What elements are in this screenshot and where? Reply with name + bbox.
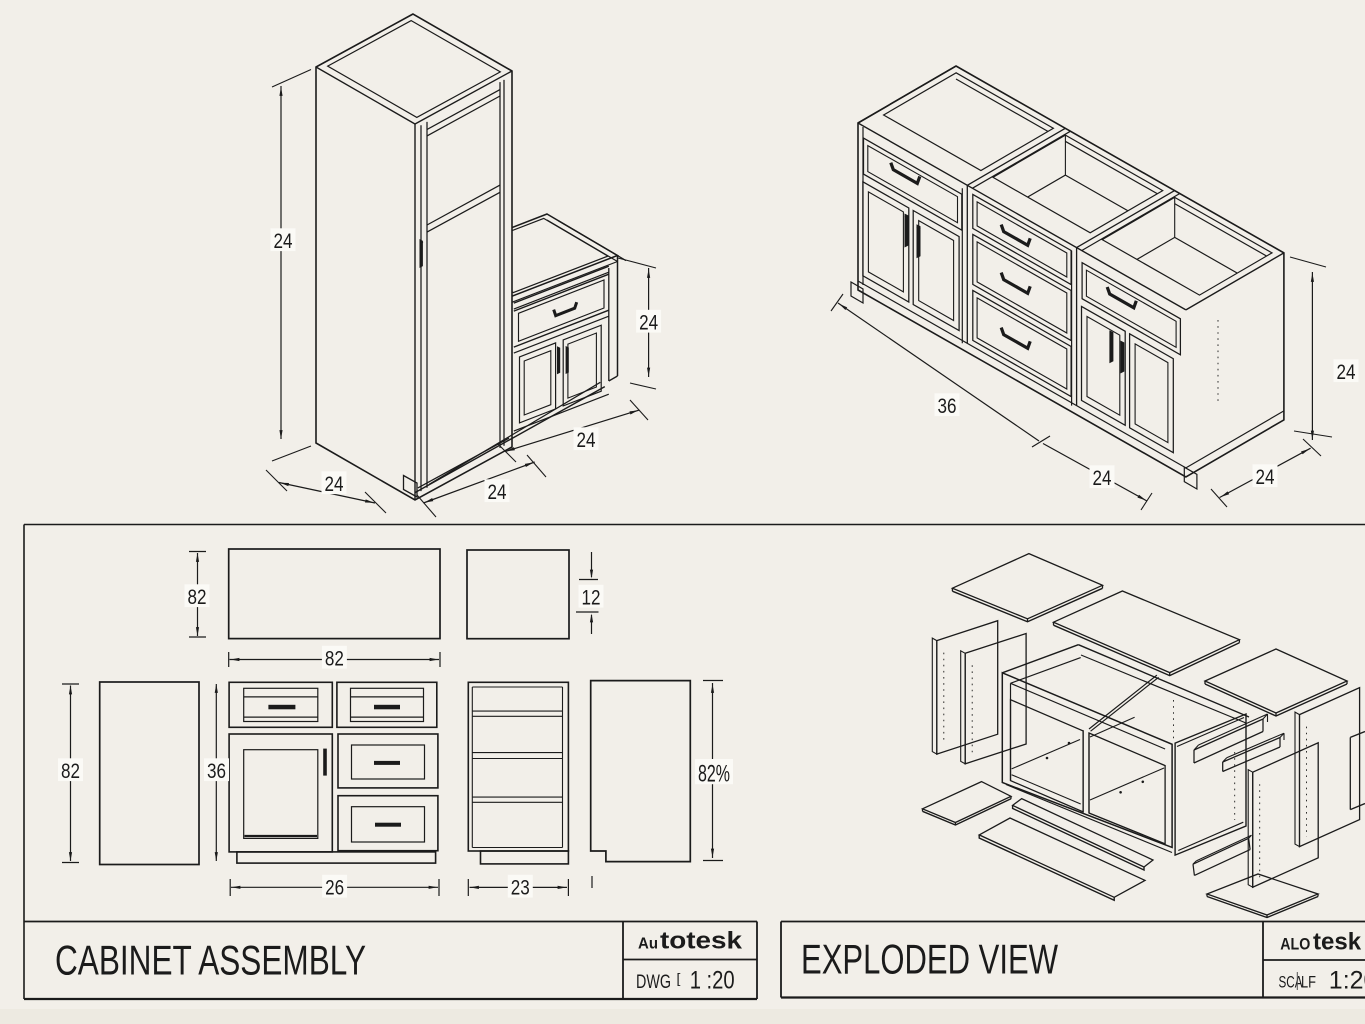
svg-text:36: 36 [938, 395, 957, 418]
svg-text:SCA: SCA [1279, 973, 1303, 991]
svg-text:totesk: totesk [660, 928, 743, 955]
svg-text:[: [ [677, 970, 681, 986]
svg-text:1:20: 1:20 [1329, 966, 1365, 994]
svg-text:LF: LF [1301, 973, 1316, 991]
svg-text:24: 24 [274, 230, 293, 253]
svg-text:24: 24 [488, 481, 507, 504]
svg-text:24: 24 [1256, 466, 1275, 489]
svg-text:1 :20: 1 :20 [690, 967, 735, 995]
svg-text:82: 82 [61, 760, 80, 783]
svg-text:82: 82 [188, 586, 207, 609]
svg-text:DWG: DWG [636, 972, 671, 993]
svg-text:12: 12 [582, 587, 601, 610]
svg-text:Au: Au [638, 936, 658, 953]
svg-text:24: 24 [1337, 361, 1356, 384]
svg-text:26: 26 [325, 877, 344, 900]
svg-text:EXPLODED VIEW: EXPLODED VIEW [801, 936, 1058, 983]
svg-text:23: 23 [511, 877, 530, 900]
svg-text:24: 24 [1093, 467, 1112, 490]
svg-text:tesk: tesk [1313, 928, 1362, 955]
svg-text:82%: 82% [698, 760, 730, 787]
svg-text:82: 82 [325, 648, 344, 671]
svg-text:CABINET ASSEMBLY: CABINET ASSEMBLY [55, 937, 366, 984]
svg-text:ALO: ALO [1280, 934, 1310, 953]
svg-text:36: 36 [207, 760, 226, 783]
svg-text:24: 24 [639, 312, 658, 335]
svg-text:24: 24 [577, 429, 596, 452]
svg-text:24: 24 [325, 473, 344, 496]
